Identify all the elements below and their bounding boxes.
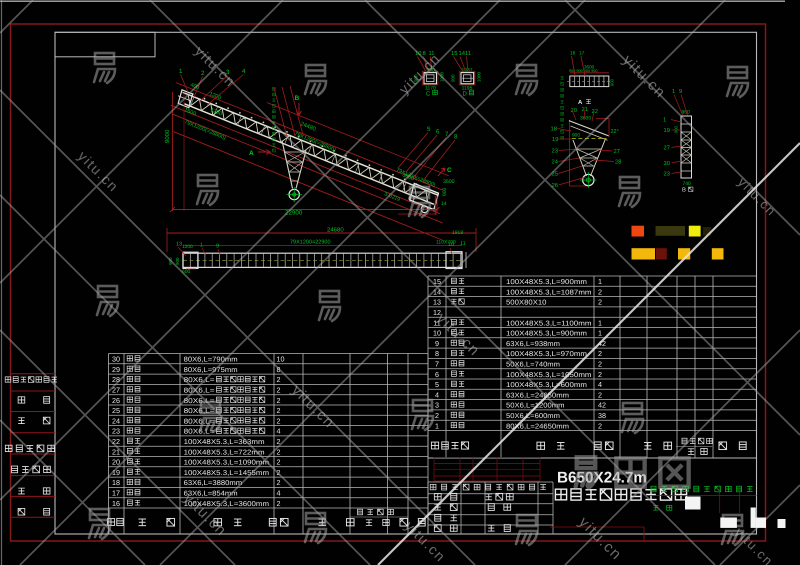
svg-text:4: 4 (277, 427, 281, 436)
svg-text:21: 21 (582, 106, 588, 113)
svg-text:4: 4 (435, 390, 439, 399)
svg-text:100X48X5.3,L=1100mm: 100X48X5.3,L=1100mm (506, 320, 592, 327)
svg-text:100X48X5.3,L=1050mm: 100X48X5.3,L=1050mm (506, 372, 592, 379)
svg-text:9: 9 (679, 88, 682, 95)
svg-text:23: 23 (112, 427, 120, 436)
svg-text:24: 24 (112, 416, 120, 425)
svg-text:10: 10 (433, 329, 441, 338)
svg-text:24680: 24680 (327, 227, 344, 234)
svg-text:8: 8 (454, 134, 458, 141)
svg-text:9: 9 (216, 244, 219, 250)
svg-text:20: 20 (571, 107, 577, 114)
svg-text:50X6,L=600mm: 50X6,L=600mm (506, 413, 560, 420)
svg-text:17: 17 (112, 489, 120, 498)
svg-text:13: 13 (176, 242, 182, 248)
svg-text:10: 10 (448, 242, 454, 248)
svg-text:900: 900 (572, 133, 580, 139)
svg-text:2: 2 (277, 458, 281, 467)
svg-text:A: A (578, 99, 583, 106)
svg-text:1: 1 (672, 89, 675, 95)
svg-text:900: 900 (674, 125, 679, 133)
svg-text:28: 28 (615, 159, 621, 166)
svg-text:22°: 22° (611, 129, 619, 135)
svg-text:63X6,L=24650mm: 63X6,L=24650mm (506, 392, 569, 399)
svg-text:15: 15 (451, 51, 457, 57)
svg-text:2: 2 (277, 386, 281, 395)
svg-text:27: 27 (614, 148, 620, 155)
svg-text:14: 14 (441, 201, 447, 207)
svg-text:5: 5 (435, 380, 439, 389)
svg-text:1: 1 (179, 68, 183, 75)
svg-text:23: 23 (552, 148, 558, 155)
svg-text:9: 9 (435, 339, 439, 348)
svg-text:100X48X5.3,L=970mm: 100X48X5.3,L=970mm (506, 351, 587, 358)
svg-text:2: 2 (277, 478, 281, 487)
svg-text:500X80X10: 500X80X10 (506, 300, 547, 307)
svg-text:25: 25 (112, 406, 120, 415)
svg-text:2: 2 (435, 411, 439, 420)
svg-text:900: 900 (442, 187, 448, 196)
svg-text:100X48X5.3,L=900mm: 100X48X5.3,L=900mm (506, 331, 587, 338)
svg-text:1918: 1918 (452, 230, 463, 236)
svg-text:1: 1 (663, 118, 666, 124)
svg-text:2: 2 (277, 416, 281, 425)
svg-text:7: 7 (435, 360, 439, 369)
svg-text:4: 4 (277, 489, 281, 498)
svg-text:100X48X5.3,L=900mm: 100X48X5.3,L=900mm (506, 279, 587, 286)
svg-text:17: 17 (579, 51, 585, 57)
svg-text:10: 10 (277, 355, 285, 364)
svg-text:900: 900 (175, 257, 180, 265)
svg-text:2: 2 (598, 349, 602, 358)
svg-text:D: D (463, 91, 468, 98)
svg-text:42: 42 (598, 401, 606, 410)
svg-text:5: 5 (427, 126, 431, 133)
svg-text:11: 11 (460, 241, 466, 247)
svg-text:100X48X5.3,L=722mm: 100X48X5.3,L=722mm (184, 449, 265, 456)
svg-text:18: 18 (551, 126, 557, 133)
svg-text:100X48X5.3,L=1455mm: 100X48X5.3,L=1455mm (184, 470, 270, 477)
svg-text:1: 1 (200, 243, 203, 249)
svg-text:6: 6 (435, 370, 439, 379)
svg-text:1000: 1000 (477, 71, 482, 82)
svg-text:29: 29 (112, 365, 120, 374)
svg-text:100X48X5.3,L=363mm: 100X48X5.3,L=363mm (184, 439, 265, 446)
svg-text:A: A (249, 150, 254, 157)
svg-text:1200: 1200 (182, 244, 193, 250)
svg-text:1: 1 (598, 329, 602, 338)
svg-text:18: 18 (112, 478, 120, 487)
svg-text:63X6,L=938mm: 63X6,L=938mm (506, 341, 560, 348)
svg-text:C: C (447, 167, 452, 174)
svg-text:3600: 3600 (443, 179, 455, 185)
svg-text:38: 38 (598, 411, 606, 420)
svg-text:2: 2 (598, 390, 602, 399)
svg-text:2: 2 (598, 287, 602, 296)
svg-text:2: 2 (277, 396, 281, 405)
svg-text:900: 900 (451, 74, 456, 82)
svg-text:13: 13 (433, 298, 441, 307)
svg-text:2: 2 (201, 70, 205, 77)
svg-text:900: 900 (610, 78, 615, 86)
svg-text:6: 6 (436, 129, 440, 136)
svg-text:30: 30 (112, 355, 120, 364)
svg-text:2: 2 (277, 406, 281, 415)
svg-text:2: 2 (277, 499, 281, 508)
svg-text:63X6,L=3880mm: 63X6,L=3880mm (184, 480, 243, 487)
svg-text:1087: 1087 (461, 67, 472, 73)
svg-text:4: 4 (242, 68, 246, 75)
svg-text:19: 19 (552, 136, 558, 143)
svg-text:2: 2 (598, 421, 602, 430)
svg-text:100X48X5.3,L=1087mm: 100X48X5.3,L=1087mm (506, 289, 592, 296)
svg-text:24: 24 (552, 159, 559, 166)
svg-text:26: 26 (112, 396, 120, 405)
svg-text:3: 3 (435, 401, 439, 410)
svg-text:900 900 900 900: 900 900 900 900 (569, 69, 598, 73)
svg-text:22: 22 (112, 437, 120, 446)
svg-text:30: 30 (664, 160, 670, 167)
svg-text:2: 2 (598, 360, 602, 369)
svg-text:2: 2 (598, 370, 602, 379)
svg-text:8: 8 (435, 349, 439, 358)
svg-text:B: B (295, 95, 300, 102)
svg-text:22: 22 (592, 108, 598, 115)
svg-text:11: 11 (465, 51, 471, 57)
svg-text:2: 2 (598, 298, 602, 307)
svg-text:19: 19 (664, 127, 670, 134)
svg-text:100X48X5.3,L=600mm: 100X48X5.3,L=600mm (506, 382, 587, 389)
svg-text:B: B (682, 188, 686, 194)
svg-text:740: 740 (683, 181, 692, 187)
svg-text:79X1200=22900: 79X1200=22900 (290, 240, 331, 246)
svg-text:1: 1 (435, 421, 439, 430)
svg-text:9000: 9000 (164, 129, 171, 143)
svg-text:C: C (426, 91, 431, 98)
svg-text:100X48X5.3,L=1090mm: 100X48X5.3,L=1090mm (184, 460, 270, 467)
svg-text:3600: 3600 (580, 116, 591, 122)
svg-text:16: 16 (570, 51, 576, 57)
svg-text:1: 1 (598, 277, 602, 286)
svg-text:23: 23 (664, 171, 670, 178)
svg-text:2: 2 (277, 375, 281, 384)
svg-text:27: 27 (664, 145, 670, 152)
svg-text:16: 16 (112, 499, 120, 508)
svg-text:1: 1 (598, 318, 602, 327)
svg-text:80X6,L=975mm: 80X6,L=975mm (184, 367, 238, 374)
svg-text:4: 4 (598, 380, 602, 389)
svg-text:80X6,L=790mm: 80X6,L=790mm (184, 357, 238, 364)
